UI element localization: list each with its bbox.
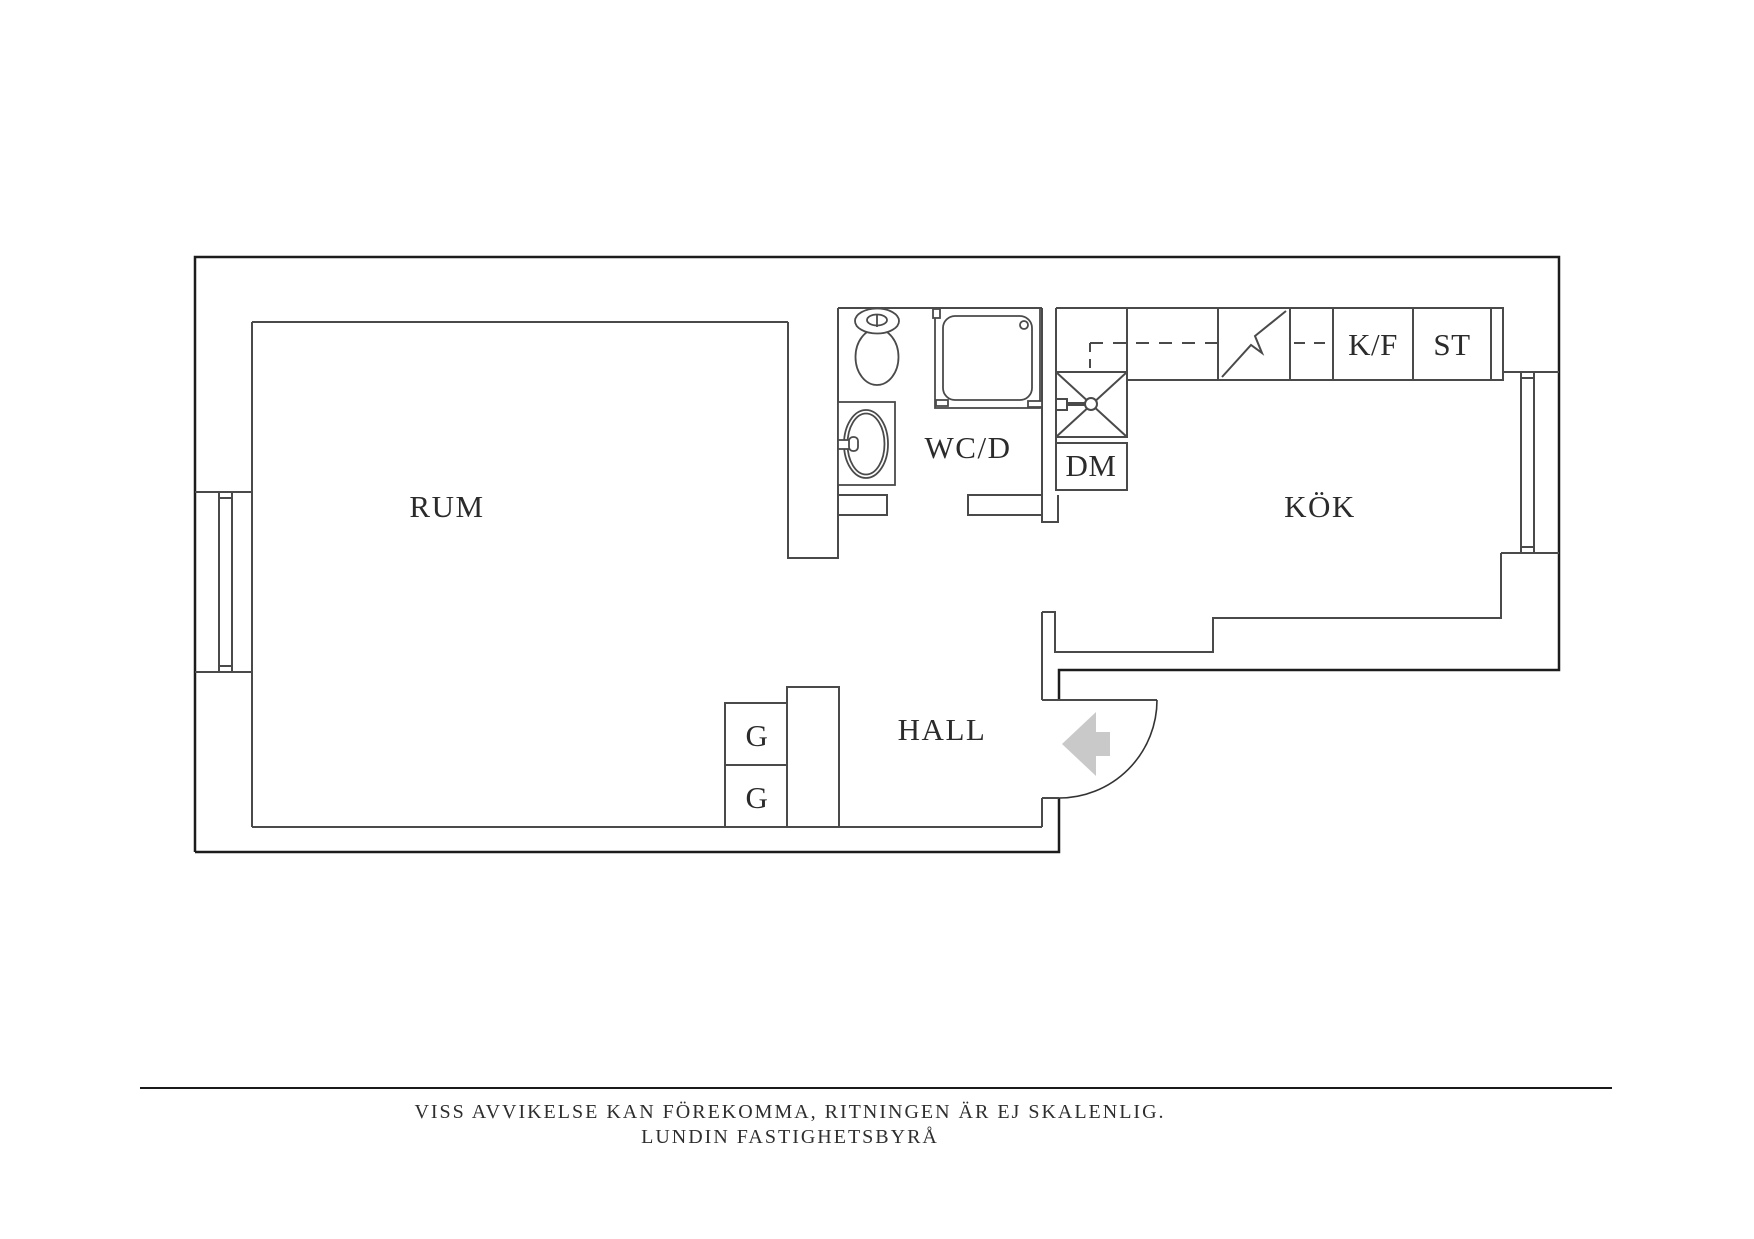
window-left-caps — [219, 498, 232, 666]
window-left-glass — [219, 492, 232, 672]
window-right-sills — [1501, 372, 1559, 553]
kitchen-sink-icon — [1056, 372, 1127, 437]
footer-disclaimer: VISS AVVIKELSE KAN FÖREKOMMA, RITNINGEN … — [414, 1100, 1165, 1123]
floor-plan-page: RUM WC/D KÖK HALL DM K/F ST G G VISS AVV… — [0, 0, 1754, 1239]
shower-hinge-bottom-left — [936, 400, 948, 406]
toilet-icon — [855, 309, 899, 386]
shower-hinge-bottom-right — [1028, 401, 1042, 407]
window-left-sills — [195, 492, 252, 672]
hall-partition-wall — [787, 687, 839, 827]
shower-tray — [943, 316, 1032, 400]
washbasin-icon — [838, 402, 895, 485]
room-label-rum: RUM — [409, 489, 484, 524]
room-label-wcd: WC/D — [925, 430, 1012, 465]
rum-right-wall — [788, 308, 838, 558]
sink-tap-base — [1056, 399, 1067, 410]
wcd-door-jamb-right — [968, 495, 1042, 515]
storage-label: ST — [1433, 327, 1470, 362]
wardrobe-upper-label: G — [746, 718, 769, 753]
entrance-door — [1059, 700, 1157, 798]
sink-drain — [1085, 398, 1097, 410]
wardrobe-lower-label: G — [746, 780, 769, 815]
window-right-glass — [1521, 372, 1534, 553]
shower-outer — [935, 308, 1040, 408]
room-label-kok: KÖK — [1284, 489, 1356, 524]
washbasin-tap — [849, 437, 858, 451]
shower-icon — [933, 308, 1042, 408]
dishwasher-label: DM — [1066, 448, 1117, 483]
window-left — [195, 492, 252, 672]
wcd-door-jamb-left — [838, 495, 887, 515]
floor-plan-drawing: RUM WC/D KÖK HALL DM K/F ST G G VISS AVV… — [0, 0, 1754, 1239]
outer-wall-bottom — [195, 798, 1059, 852]
toilet-bowl — [856, 329, 899, 385]
footer: VISS AVVIKELSE KAN FÖREKOMMA, RITNINGEN … — [140, 1088, 1612, 1148]
window-right-caps — [1521, 378, 1534, 547]
room-label-hall: HALL — [898, 712, 987, 747]
shower-hinge-top — [933, 309, 940, 318]
shower-drain — [1020, 321, 1028, 329]
kitchen-bottom-wall — [1042, 553, 1501, 652]
fridge-freezer-label: K/F — [1348, 327, 1398, 362]
entrance-arrow-icon — [1062, 712, 1110, 776]
footer-agency: LUNDIN FASTIGHETSBYRÅ — [641, 1126, 939, 1148]
window-right — [1501, 372, 1559, 553]
